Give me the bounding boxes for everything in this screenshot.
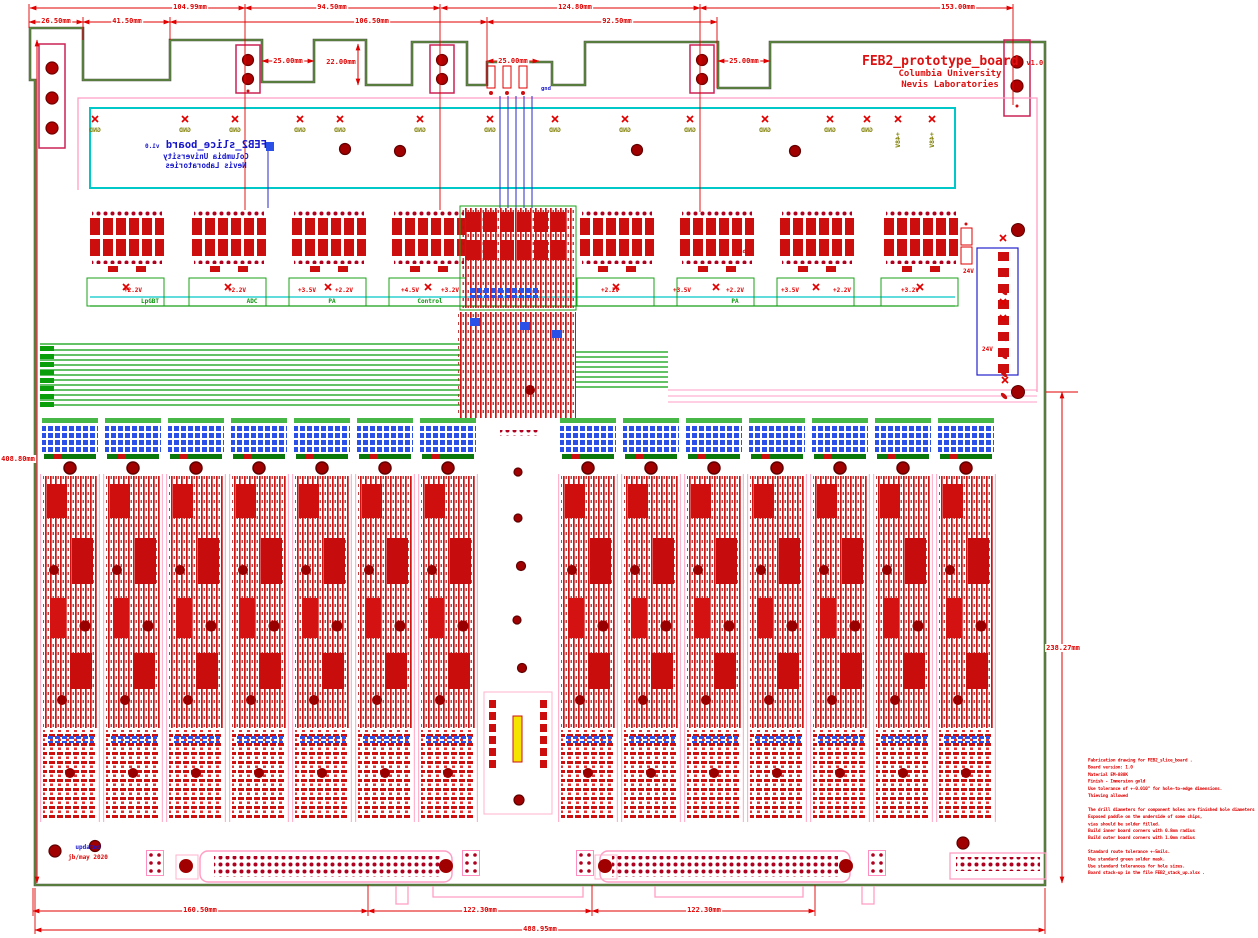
voltage-net-label: +2.2V: [726, 287, 744, 294]
v24-net-label: 24V: [982, 346, 993, 353]
voltage-net-label: +2.2V: [124, 287, 142, 294]
org-name: Columbia University: [862, 69, 1038, 80]
bottom-connectors: [147, 851, 1047, 905]
central-channel: [484, 430, 552, 814]
dimension-label: 22.00mm: [325, 58, 357, 66]
note-line: Build outer board corners with 1.0mm rad…: [1088, 835, 1258, 842]
voltage-net-label: +3.2V: [441, 287, 459, 294]
note-line: vias should be solder filled.: [1088, 820, 1258, 827]
dimension-label: 122.30mm: [462, 906, 498, 914]
title-block: FEB2_prototype_board v1.0 Columbia Unive…: [862, 54, 1038, 91]
section-label: LpGBT: [141, 298, 159, 305]
gnd-net-label: GND: [414, 126, 426, 134]
note-line: [1088, 842, 1258, 849]
note-line: Build inner board corners with 0.8mm rad…: [1088, 828, 1258, 835]
dimension-label: 153.00mm: [940, 3, 976, 11]
revision-author-date: jb/may 2020: [68, 854, 108, 861]
board-name: FEB2_prototype_board: [862, 54, 1019, 69]
lab-name: Nevis Laboratories: [862, 80, 1038, 91]
section-label: PA: [328, 298, 335, 305]
dimension-label: 104.99mm: [172, 3, 208, 11]
back-board-title: FEB2_slice_board v1.0: [138, 139, 274, 152]
p48v-net-label: +48V: [894, 132, 902, 148]
voltage-net-label: +2.2V: [601, 287, 619, 294]
note-line: Thieving allowed: [1088, 792, 1258, 799]
dimension-label: 160.50mm: [182, 906, 218, 914]
voltage-net-label: +3.5V: [673, 287, 691, 294]
voltage-net-label: +3.2V: [901, 287, 919, 294]
resistor-outline: [961, 228, 972, 264]
dimension-label: 26.50mm: [40, 17, 72, 25]
dimension-label: 238.27mm: [1045, 644, 1081, 652]
v24-net-label: 24V: [963, 268, 974, 275]
dimension-label: 488.95mm: [522, 925, 558, 933]
revision-status: updated: [75, 844, 100, 851]
below-board-outlines: [396, 886, 874, 904]
dimension-label: 41.50mm: [111, 17, 143, 25]
note-line: Material EM-888K: [1088, 771, 1258, 778]
dimension-label: 106.50mm: [354, 17, 390, 25]
gnd-small-label: gnd: [541, 86, 551, 92]
gnd-net-label: GND: [824, 126, 836, 134]
note-line: Board version: 1.0: [1088, 764, 1258, 771]
voltage-net-label: +3.5V: [781, 287, 799, 294]
gnd-small-label: gnd: [736, 249, 746, 255]
dimension-label: 25.00mm: [272, 57, 304, 65]
central-asic-cluster: [458, 206, 576, 418]
note-line: Exposed paddle on the underside of some …: [1088, 813, 1258, 820]
fabrication-notes: Fabrication drawing for FEB2_slice_board…: [1088, 757, 1258, 877]
voltage-net-label: +2.2V: [228, 287, 246, 294]
gnd-net-label: GND: [684, 126, 696, 134]
voltage-net-label: +2.2V: [335, 287, 353, 294]
p48v-net-label: +48V: [928, 132, 936, 148]
note-line: Board stack-up in the file FEB2_stack_up…: [1088, 870, 1258, 877]
top-center-components: [266, 66, 532, 208]
gnd-net-label: GND: [334, 126, 346, 134]
gnd-net-label: GND: [89, 126, 101, 134]
right-power-connector: [961, 223, 1025, 401]
note-line: Use tolerance of +-0.010" for hole-to-ed…: [1088, 785, 1258, 792]
dimension-label: 124.80mm: [557, 3, 593, 11]
back-board-version: v1.0: [145, 143, 159, 150]
gnd-net-label: GND: [759, 126, 771, 134]
gnd-net-label: GND: [484, 126, 496, 134]
back-board-name: FEB2_slice_board: [166, 139, 267, 151]
dimension-label: 408.80mm: [0, 455, 36, 463]
gnd-net-label: GND: [619, 126, 631, 134]
note-line: Standard route tolerance +-5mils.: [1088, 849, 1258, 856]
gnd-net-label: GND: [229, 126, 241, 134]
left-edge-green-pads: [40, 346, 54, 407]
section-label: ADC: [247, 298, 258, 305]
dimension-label: 94.50mm: [316, 3, 348, 11]
note-line: Use standard tolerances for hole sizes.: [1088, 863, 1258, 870]
note-line: Finish - Immersion gold: [1088, 778, 1258, 785]
note-line: [1088, 799, 1258, 806]
gnd-net-label: GND: [861, 126, 873, 134]
gnd-net-label: GND: [294, 126, 306, 134]
voltage-net-label: +2.2V: [833, 287, 851, 294]
section-label: PA: [731, 298, 738, 305]
back-org-name: Columbia University: [138, 152, 274, 161]
dimension-label: 25.00mm: [497, 57, 529, 65]
board-version: v1.0: [1026, 59, 1043, 67]
gnd-net-label: GND: [179, 126, 191, 134]
voltage-net-label: +3.5V: [298, 287, 316, 294]
section-label: Control: [417, 298, 442, 305]
board-title: FEB2_prototype_board v1.0: [862, 54, 1038, 69]
dimension-label: 25.00mm: [728, 57, 760, 65]
note-line: Fabrication drawing for FEB2_slice_board…: [1088, 757, 1258, 764]
back-silkscreen-block: FEB2_slice_board v1.0 Columbia Universit…: [138, 139, 274, 170]
dimension-label: 122.30mm: [686, 906, 722, 914]
note-line: The drill diameters for component holes …: [1088, 806, 1258, 813]
voltage-net-label: +4.5V: [401, 287, 419, 294]
note-line: Use standard green solder mask.: [1088, 856, 1258, 863]
back-lab-name: Nevis Laboratories: [138, 161, 274, 170]
gnd-net-label: GND: [549, 126, 561, 134]
pcb-fabrication-drawing: 104.99mm 94.50mm 124.80mm 153.00mm 26.50…: [0, 0, 1258, 938]
dimension-label: 92.50mm: [601, 17, 633, 25]
